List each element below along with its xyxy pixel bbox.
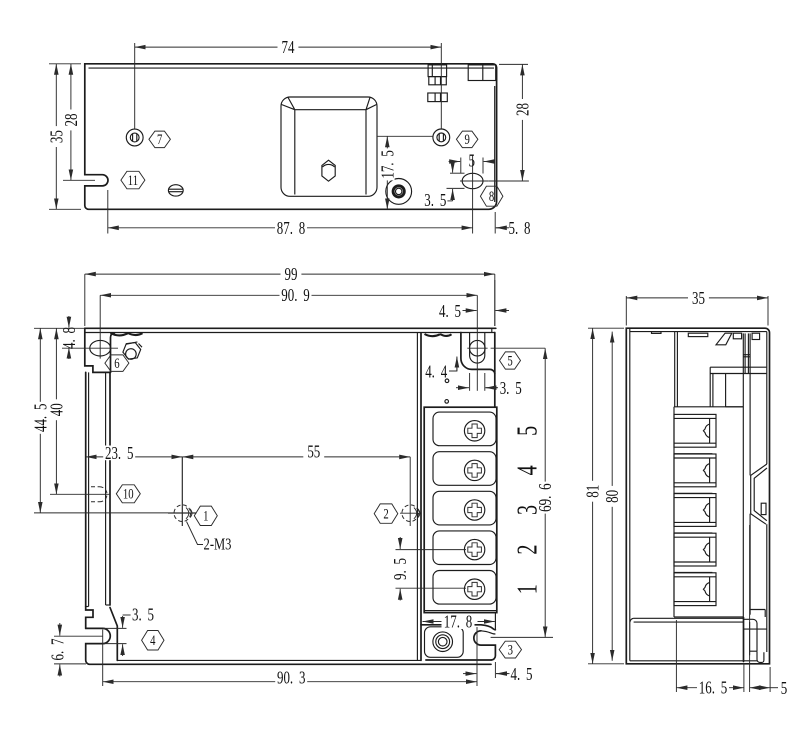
svg-text:5. 8: 5. 8 <box>509 219 531 238</box>
svg-text:4. 4: 4. 4 <box>425 363 447 382</box>
svg-text:1: 1 <box>512 584 543 594</box>
svg-text:5: 5 <box>468 152 475 171</box>
svg-text:9. 5: 9. 5 <box>391 558 410 580</box>
svg-text:28: 28 <box>62 113 81 126</box>
svg-text:35: 35 <box>48 130 67 143</box>
svg-text:87. 8: 87. 8 <box>277 219 306 238</box>
svg-text:44. 5: 44. 5 <box>32 403 51 432</box>
svg-text:3. 5: 3. 5 <box>424 191 446 210</box>
svg-text:7: 7 <box>157 132 162 148</box>
svg-text:6: 6 <box>114 355 119 371</box>
svg-text:4. 5: 4. 5 <box>511 665 533 684</box>
svg-text:9: 9 <box>465 132 470 148</box>
svg-text:17. 5: 17. 5 <box>379 150 398 179</box>
svg-text:4: 4 <box>512 465 543 475</box>
svg-text:55: 55 <box>307 443 320 462</box>
svg-text:99: 99 <box>285 265 298 284</box>
svg-text:4: 4 <box>150 633 156 649</box>
svg-text:90. 9: 90. 9 <box>281 286 310 305</box>
svg-text:90. 3: 90. 3 <box>277 669 306 688</box>
svg-text:80: 80 <box>603 490 622 503</box>
svg-text:2-M3: 2-M3 <box>204 536 232 554</box>
svg-text:4. 8: 4. 8 <box>60 327 79 349</box>
svg-text:1: 1 <box>203 508 208 524</box>
svg-text:74: 74 <box>282 38 295 57</box>
svg-text:16. 5: 16. 5 <box>699 679 728 698</box>
svg-text:6. 7: 6. 7 <box>49 638 68 660</box>
svg-text:11: 11 <box>128 172 138 188</box>
svg-text:3. 5: 3. 5 <box>132 606 154 625</box>
svg-text:5: 5 <box>781 679 788 698</box>
svg-text:5: 5 <box>512 426 543 436</box>
svg-text:2: 2 <box>512 545 543 555</box>
svg-text:5: 5 <box>507 353 512 369</box>
svg-text:69. 6: 69. 6 <box>536 483 555 512</box>
svg-text:3: 3 <box>508 642 513 658</box>
svg-text:8: 8 <box>489 189 494 205</box>
svg-text:2: 2 <box>383 506 388 522</box>
svg-text:3. 5: 3. 5 <box>500 379 522 398</box>
svg-text:17. 8: 17. 8 <box>444 613 473 632</box>
svg-text:35: 35 <box>692 289 705 308</box>
svg-text:23. 5: 23. 5 <box>105 444 134 463</box>
svg-text:4. 5: 4. 5 <box>439 302 461 321</box>
svg-text:10: 10 <box>123 486 134 502</box>
svg-text:28: 28 <box>514 103 533 116</box>
svg-text:81: 81 <box>584 485 603 498</box>
